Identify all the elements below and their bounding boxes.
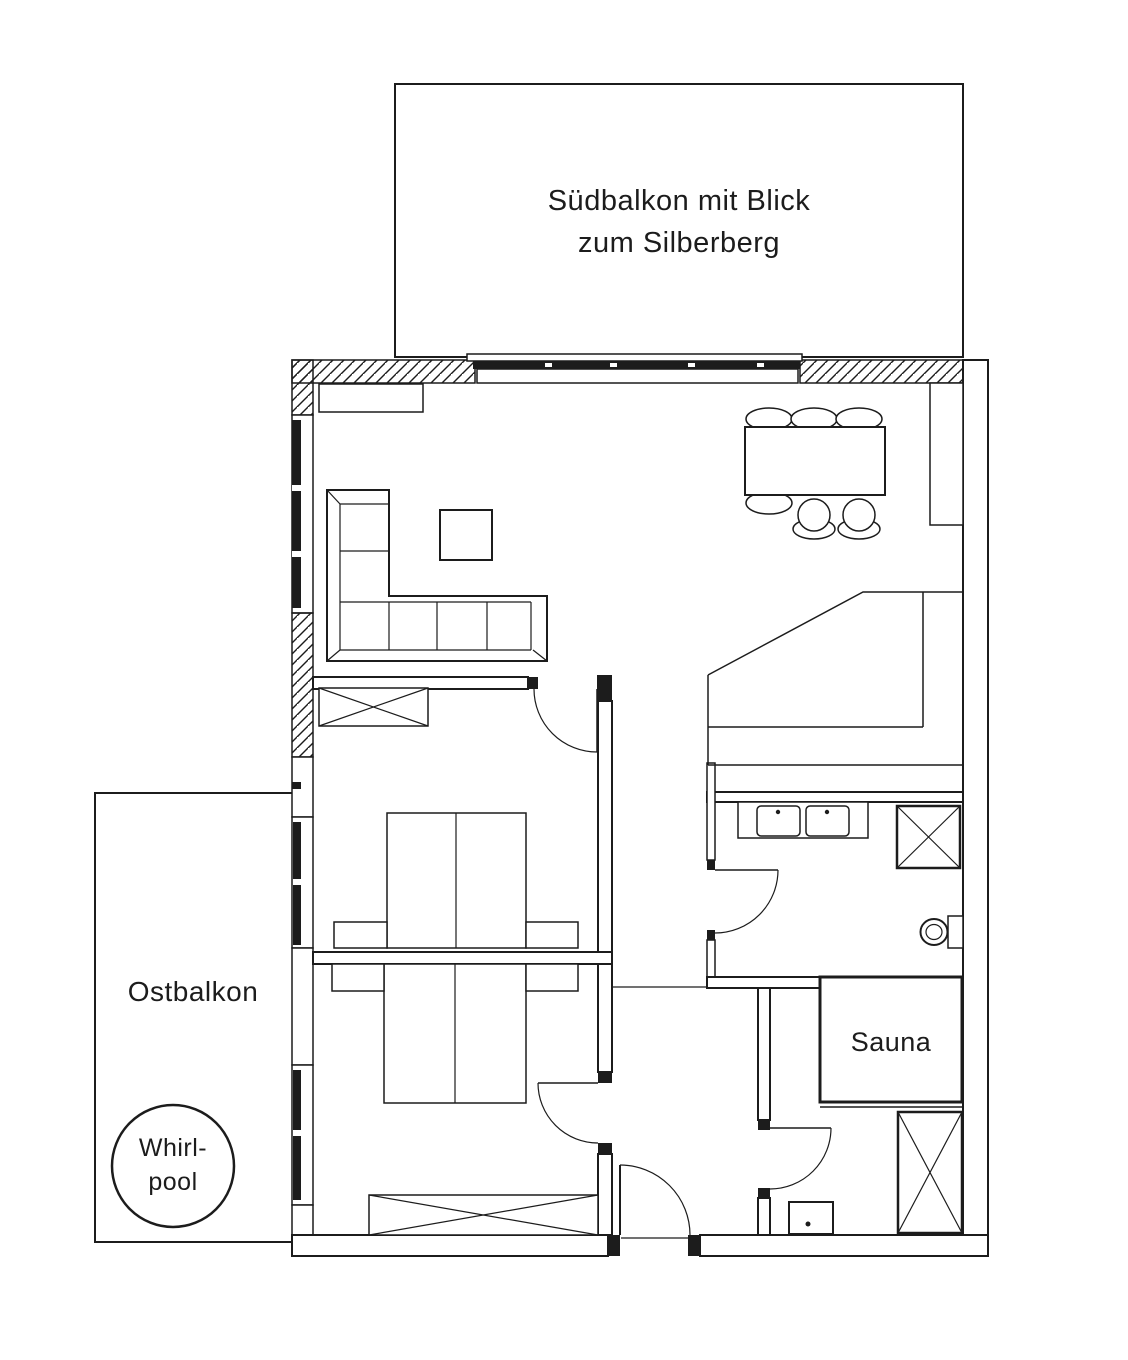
bottom-wall-left (292, 1235, 608, 1256)
whirlpool-label-line1: Whirl- (139, 1134, 207, 1162)
wall-between-bedrooms (313, 952, 612, 964)
sauna-label: Sauna (851, 1027, 932, 1057)
nightstand (332, 964, 384, 991)
wall-bathroom-bottom (707, 977, 822, 988)
left-wall-top (292, 360, 313, 415)
entrance-jamb-left (608, 1235, 620, 1256)
door-jamb (707, 860, 715, 870)
door-jamb (758, 1188, 770, 1198)
wall-bedrooms-hall-upper (598, 701, 612, 1072)
whirlpool-label-line2: pool (148, 1168, 197, 1196)
sliding-door (467, 354, 802, 383)
wall-bathroom-left-upper (707, 763, 715, 860)
wardrobe (319, 688, 428, 726)
vanity-double-sink (738, 802, 868, 838)
top-wall-left (292, 360, 475, 383)
sliding-door-leaf (473, 361, 800, 369)
window-bedroom-top (292, 817, 313, 948)
door-jamb (598, 1072, 612, 1083)
entrance (620, 1165, 690, 1238)
right-wall (963, 360, 988, 1256)
corner-sofa (327, 490, 547, 661)
shower (898, 1112, 962, 1233)
kitchen-counter (708, 592, 963, 765)
door-swing (534, 689, 597, 752)
entry-door-swing (620, 1165, 690, 1235)
washbasin-outline (789, 1202, 833, 1234)
wardrobe (369, 1195, 598, 1235)
sideboard (319, 384, 423, 412)
east-balcony: Ostbalkon Whirl- pool (95, 793, 293, 1242)
south-balcony-label-line2: zum Silberberg (578, 227, 780, 259)
toilet (921, 916, 964, 948)
bedroom-top (319, 688, 597, 948)
sliding-door-inner-track (477, 369, 798, 383)
whirlpool: Whirl- pool (112, 1105, 234, 1227)
drain (806, 1222, 811, 1227)
dining-chairs-bottom (793, 499, 880, 539)
kitchen-tall-cabinet (930, 383, 963, 525)
south-balcony-label-line1: Südbalkon mit Blick (548, 185, 811, 217)
top-wall-right (800, 360, 987, 383)
entrance-jamb-right (688, 1235, 700, 1256)
coffee-table (440, 510, 492, 560)
window-living (292, 415, 313, 613)
washbasin (789, 1202, 833, 1234)
faucet (776, 810, 780, 814)
floor-plan-drawing: Südbalkon mit Blick zum Silberberg Ostba… (0, 0, 1128, 1360)
south-balcony: Südbalkon mit Blick zum Silberberg (395, 84, 963, 357)
faucet (825, 810, 829, 814)
door-bathroom (715, 870, 778, 933)
left-wall-segment (292, 948, 313, 1065)
door-jamb (758, 1120, 770, 1130)
double-bed (387, 813, 526, 948)
door-bedroom-top (534, 689, 597, 752)
window-glazing (292, 420, 301, 608)
bedroom-bottom (332, 964, 598, 1235)
shower (897, 806, 960, 868)
door-swing (715, 870, 778, 933)
double-bed (384, 964, 526, 1103)
interior-walls (313, 675, 963, 1235)
door-bedroom-bottom (538, 1083, 598, 1143)
door-shower-room (770, 1128, 831, 1189)
door-jamb (528, 677, 538, 689)
bathroom (715, 802, 963, 948)
nightstand (526, 964, 578, 991)
wall-bedrooms-hall-lower (598, 1154, 612, 1235)
door-jamb (707, 930, 715, 940)
toilet-bowl (921, 919, 948, 945)
wall-living-bedroom (313, 677, 528, 689)
whirlpool-outline (112, 1105, 234, 1227)
door-swing (770, 1128, 831, 1189)
sauna-cabin: Sauna (820, 977, 962, 1107)
sliding-door-outer-track (467, 354, 802, 361)
dining-table (745, 427, 885, 495)
dining-set (745, 408, 885, 539)
nightstand (334, 922, 387, 948)
wall-shower-room-left-lower (758, 1198, 770, 1235)
wall-shower-room-left-upper (758, 988, 770, 1120)
left-wall-mid (292, 613, 313, 757)
bottom-wall-right (700, 1235, 988, 1256)
left-wall-tick (292, 782, 301, 789)
east-balcony-label: Ostbalkon (128, 976, 259, 1007)
shower-room: Sauna (770, 977, 962, 1234)
wall-kitchen-bathroom (707, 792, 963, 802)
south-balcony-outline (395, 84, 963, 357)
toilet-tank (948, 916, 963, 948)
door-jamb (598, 1143, 612, 1154)
nightstand (526, 922, 578, 948)
window-bedroom-bottom (292, 1065, 313, 1205)
floor-plan-page: Südbalkon mit Blick zum Silberberg Ostba… (0, 0, 1128, 1360)
wall-corner-cap (597, 675, 612, 701)
living-dining-area (319, 384, 885, 661)
door-swing (538, 1083, 598, 1143)
